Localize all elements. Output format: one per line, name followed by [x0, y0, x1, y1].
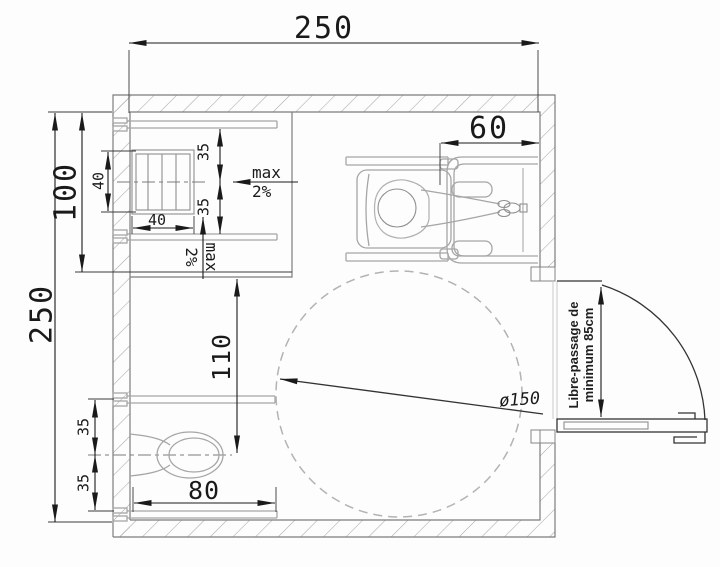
wall-bottom — [113, 520, 555, 537]
door-jamb-top-stop — [531, 267, 540, 281]
door-jamb-bottom — [540, 430, 555, 443]
door-jamb-bottom-stop — [531, 430, 540, 443]
label-slope-h-line1: max — [252, 163, 281, 182]
label-door-clearance-line2: minimum 85cm — [581, 308, 596, 403]
label-room-width: 250 — [294, 11, 354, 46]
floor-plan-canvas: 250 250 100 40 40 35 35 max 2% max 2% 60… — [0, 0, 720, 567]
wall-right-lower — [540, 443, 555, 520]
label-drain-height: 40 — [89, 172, 107, 190]
background — [0, 0, 720, 567]
label-washbasin-width: 60 — [469, 111, 509, 146]
label-door-clearance-line1: Libre-passage de — [566, 302, 581, 409]
label-turning-circle-diameter: ø150 — [499, 389, 541, 412]
wall-left — [113, 95, 130, 537]
label-room-height: 250 — [25, 284, 60, 344]
floor-plan-svg: 250 250 100 40 40 35 35 max 2% max 2% 60… — [0, 0, 720, 567]
door-jamb-top — [540, 267, 555, 281]
label-slope-v-line1: max — [202, 243, 221, 272]
label-drain-width: 40 — [148, 211, 166, 229]
label-toilet-width: 80 — [188, 476, 220, 505]
label-toilet-offset-bottom: 35 — [74, 474, 92, 492]
label-door-clearance: Libre-passage de minimum 85cm — [566, 302, 596, 409]
label-toilet-offset-top: 35 — [74, 418, 92, 436]
wall-right-upper — [540, 112, 555, 267]
label-toilet-axis: 110 — [207, 333, 236, 381]
wall-top — [113, 95, 555, 112]
label-shower-depth: 100 — [49, 162, 84, 222]
label-shower-offset-top: 35 — [194, 143, 212, 161]
label-slope-h-line2: 2% — [252, 182, 272, 201]
label-shower-offset-bottom: 35 — [194, 198, 212, 216]
label-slope-v-line2: 2% — [182, 247, 201, 267]
